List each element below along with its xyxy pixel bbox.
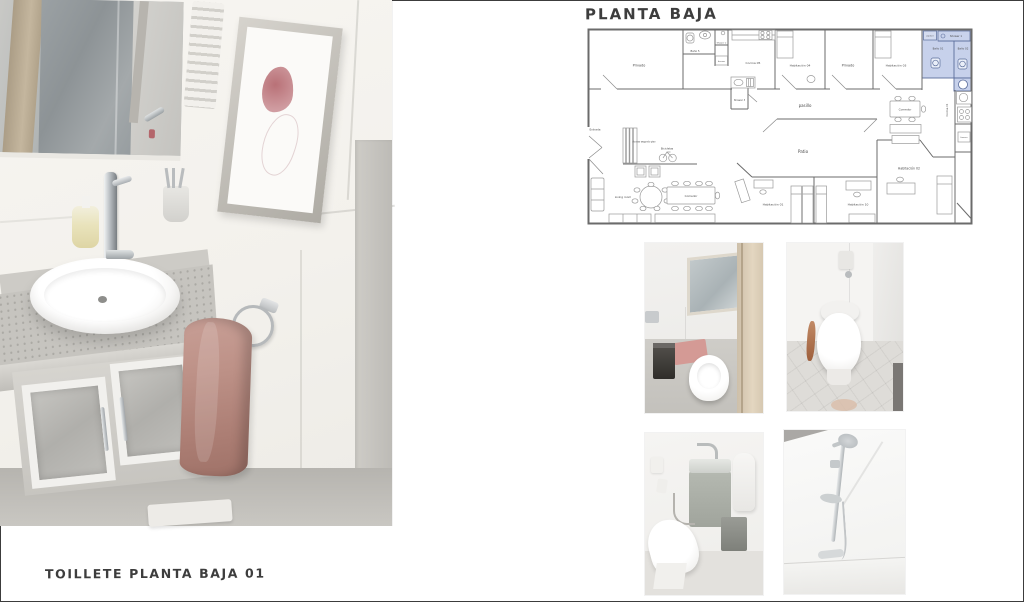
dark-object-edge (893, 363, 903, 411)
label-habitacion-03: Habitación 03 (886, 64, 907, 68)
artwork-mat (227, 27, 333, 214)
toothbrush-cup (163, 186, 189, 222)
label-habitacion-04: Habitación 04 (790, 64, 811, 68)
photo-toilet-cistern (645, 433, 763, 595)
mirror-reflection-red-hook (149, 129, 155, 138)
portfolio-page: TOILLETE PLANTA BAJA 01 PLANTA BAJA (0, 0, 1024, 602)
label-entrada: Entrada (590, 128, 601, 132)
photo-toilet-mirror (645, 243, 763, 413)
sink-inner-rim (44, 268, 166, 322)
artwork-rose-sketch (260, 65, 296, 114)
bathtub-edge (784, 557, 905, 594)
foot-blur (831, 399, 857, 411)
label-bano-01: Baño 01 (933, 47, 944, 51)
mirror (687, 252, 741, 316)
plan-title: PLANTA BAJA (585, 5, 718, 24)
toilet-bowl (817, 313, 861, 375)
toilet-paper-holder (651, 457, 663, 473)
label-washer: washer (926, 35, 934, 38)
toilet-paper-holder (645, 311, 659, 323)
ceiling-shadow (784, 430, 828, 442)
trash-bin-lid (653, 343, 675, 348)
vanity-door-left (21, 377, 115, 489)
soap-dispenser (72, 206, 99, 248)
mirror-reflection-door (38, 0, 133, 155)
plan-highlight-bathrooms (922, 30, 972, 92)
sink-drain (98, 296, 107, 303)
label-habitacion-02: Habitación 02 (898, 167, 920, 171)
label-habitacion-01: Habitación 01 (763, 203, 784, 207)
label-shower-3: Shower 3 (734, 99, 746, 102)
mirror-reflection-doorframe (2, 0, 43, 153)
soap-pump (82, 196, 90, 208)
label-privado-left: Privado (633, 64, 646, 68)
label-pasillo: pasillo (799, 103, 812, 108)
label-living-room: Living room (615, 195, 632, 199)
label-bano-02: Baño 02 (958, 47, 969, 51)
toilet-base (653, 563, 687, 589)
wall-dispenser (733, 453, 755, 511)
label-freezer-top: freezer (718, 60, 725, 63)
towel-radiator (183, 1, 224, 109)
artwork-figure-lines (254, 109, 305, 179)
framed-artwork (217, 17, 343, 224)
label-acceso: Acceso segundo piso (633, 141, 657, 144)
shower-holder (830, 460, 840, 468)
toothbrush (172, 168, 175, 188)
pedal-bin (721, 517, 747, 551)
faucet-spout (106, 250, 134, 259)
cistern-sink-top (689, 459, 731, 473)
plan-door-swings (589, 75, 896, 174)
plan-furniture (591, 30, 972, 223)
label-habitacion-10: Habitación 10 (848, 203, 869, 207)
wall-fixture (839, 251, 853, 269)
main-bathroom-photo (0, 0, 392, 525)
wall-corner-line (843, 441, 883, 505)
trash-bin (653, 343, 675, 379)
label-comedor-right: Comedor (899, 108, 913, 112)
photo-toilet-top-view (787, 243, 903, 411)
toilet-seat (697, 363, 721, 389)
label-shower-1: Shower 1 (950, 34, 962, 38)
floor-plan: Privado Baño 5 Shower 2 freezer Cocina 0… (587, 28, 973, 228)
label-bano-5: Baño 5 (690, 49, 699, 53)
label-cocina-05: Cocina 05 (746, 61, 761, 65)
photo-shower (784, 430, 905, 594)
label-cocina-01: Cocina 01 (945, 103, 949, 116)
photo-caption: TOILLETE PLANTA BAJA 01 (45, 566, 266, 582)
mirror (0, 0, 184, 161)
label-comedor-left: Comedor (685, 194, 699, 198)
label-patio: Patio (798, 149, 809, 154)
label-freezer-right: freezer (960, 136, 967, 139)
label-privado-right: Privado (842, 64, 855, 68)
door-knob (845, 271, 852, 278)
label-shower-2: Shower 2 (717, 42, 727, 45)
door-edge-line (741, 243, 743, 413)
toilet-paper-roll (656, 478, 668, 493)
label-bicicletas: Bicicletas (661, 147, 674, 151)
toilet-base (827, 369, 851, 385)
